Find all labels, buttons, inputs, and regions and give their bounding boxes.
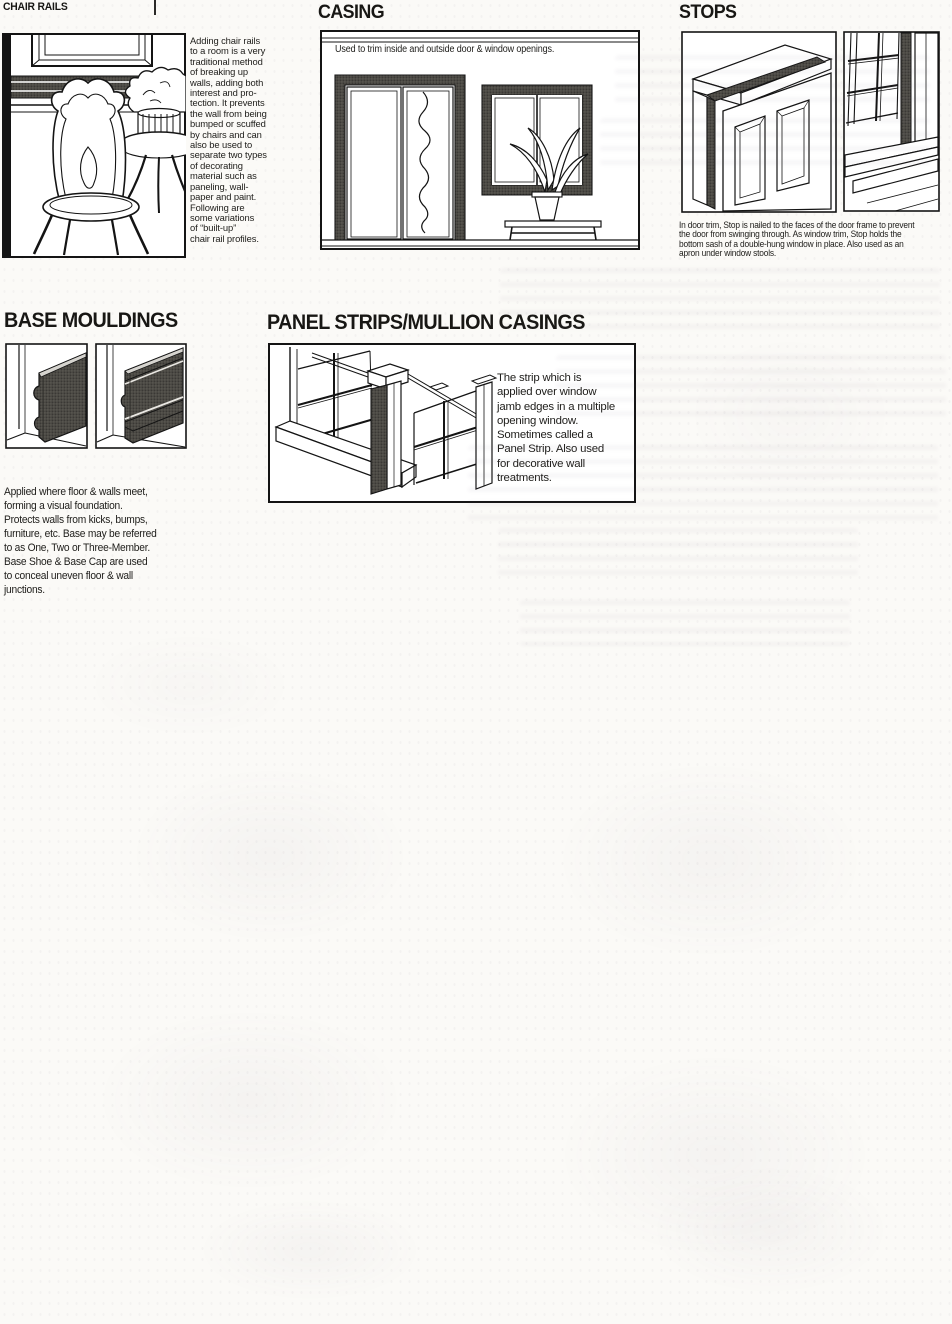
base-mouldings-caption: Applied where floor & walls meet, formin…	[4, 485, 190, 597]
chair-rails-illustration	[2, 33, 186, 258]
stops-window-illustration	[843, 31, 940, 212]
base-moulding-illustration-1	[5, 343, 88, 449]
bleed-through-artifact	[640, 300, 940, 530]
casing-illustration: Used to trim inside and outside door & w…	[320, 30, 640, 250]
base-moulding-illustration-2	[95, 343, 187, 449]
bleed-through-artifact	[490, 720, 930, 1000]
bleed-through-artifact	[40, 610, 340, 760]
scanned-moulding-guide-page: CHAIR RAILS	[0, 0, 952, 1324]
stops-title: STOPS	[679, 3, 736, 22]
bleed-through-artifact	[520, 600, 850, 646]
bleed-through-artifact	[150, 1180, 470, 1320]
casing-caption: Used to trim inside and outside door & w…	[335, 44, 554, 56]
stops-caption: In door trim, Stop is nailed to the face…	[679, 221, 952, 259]
panel-strips-illustration: The strip which is applied over window j…	[268, 343, 636, 503]
panel-strips-title: PANEL STRIPS/MULLION CASINGS	[267, 312, 585, 334]
bleed-through-artifact	[30, 970, 470, 1230]
chair-rails-description: Adding chair rails to a room is a very t…	[190, 36, 320, 244]
panel-strips-caption: The strip which is applied over window j…	[497, 371, 637, 485]
scan-artifact-tick	[154, 0, 156, 15]
stops-door-illustration	[681, 31, 837, 213]
bleed-through-artifact	[600, 1140, 940, 1320]
bleed-through-artifact	[490, 1010, 940, 1300]
casing-title: CASING	[318, 3, 384, 22]
bleed-through-artifact	[498, 528, 858, 576]
base-mouldings-title: BASE MOULDINGS	[4, 310, 178, 332]
bleed-through-artifact	[70, 730, 470, 980]
chair-rails-title: CHAIR RAILS	[3, 2, 68, 13]
